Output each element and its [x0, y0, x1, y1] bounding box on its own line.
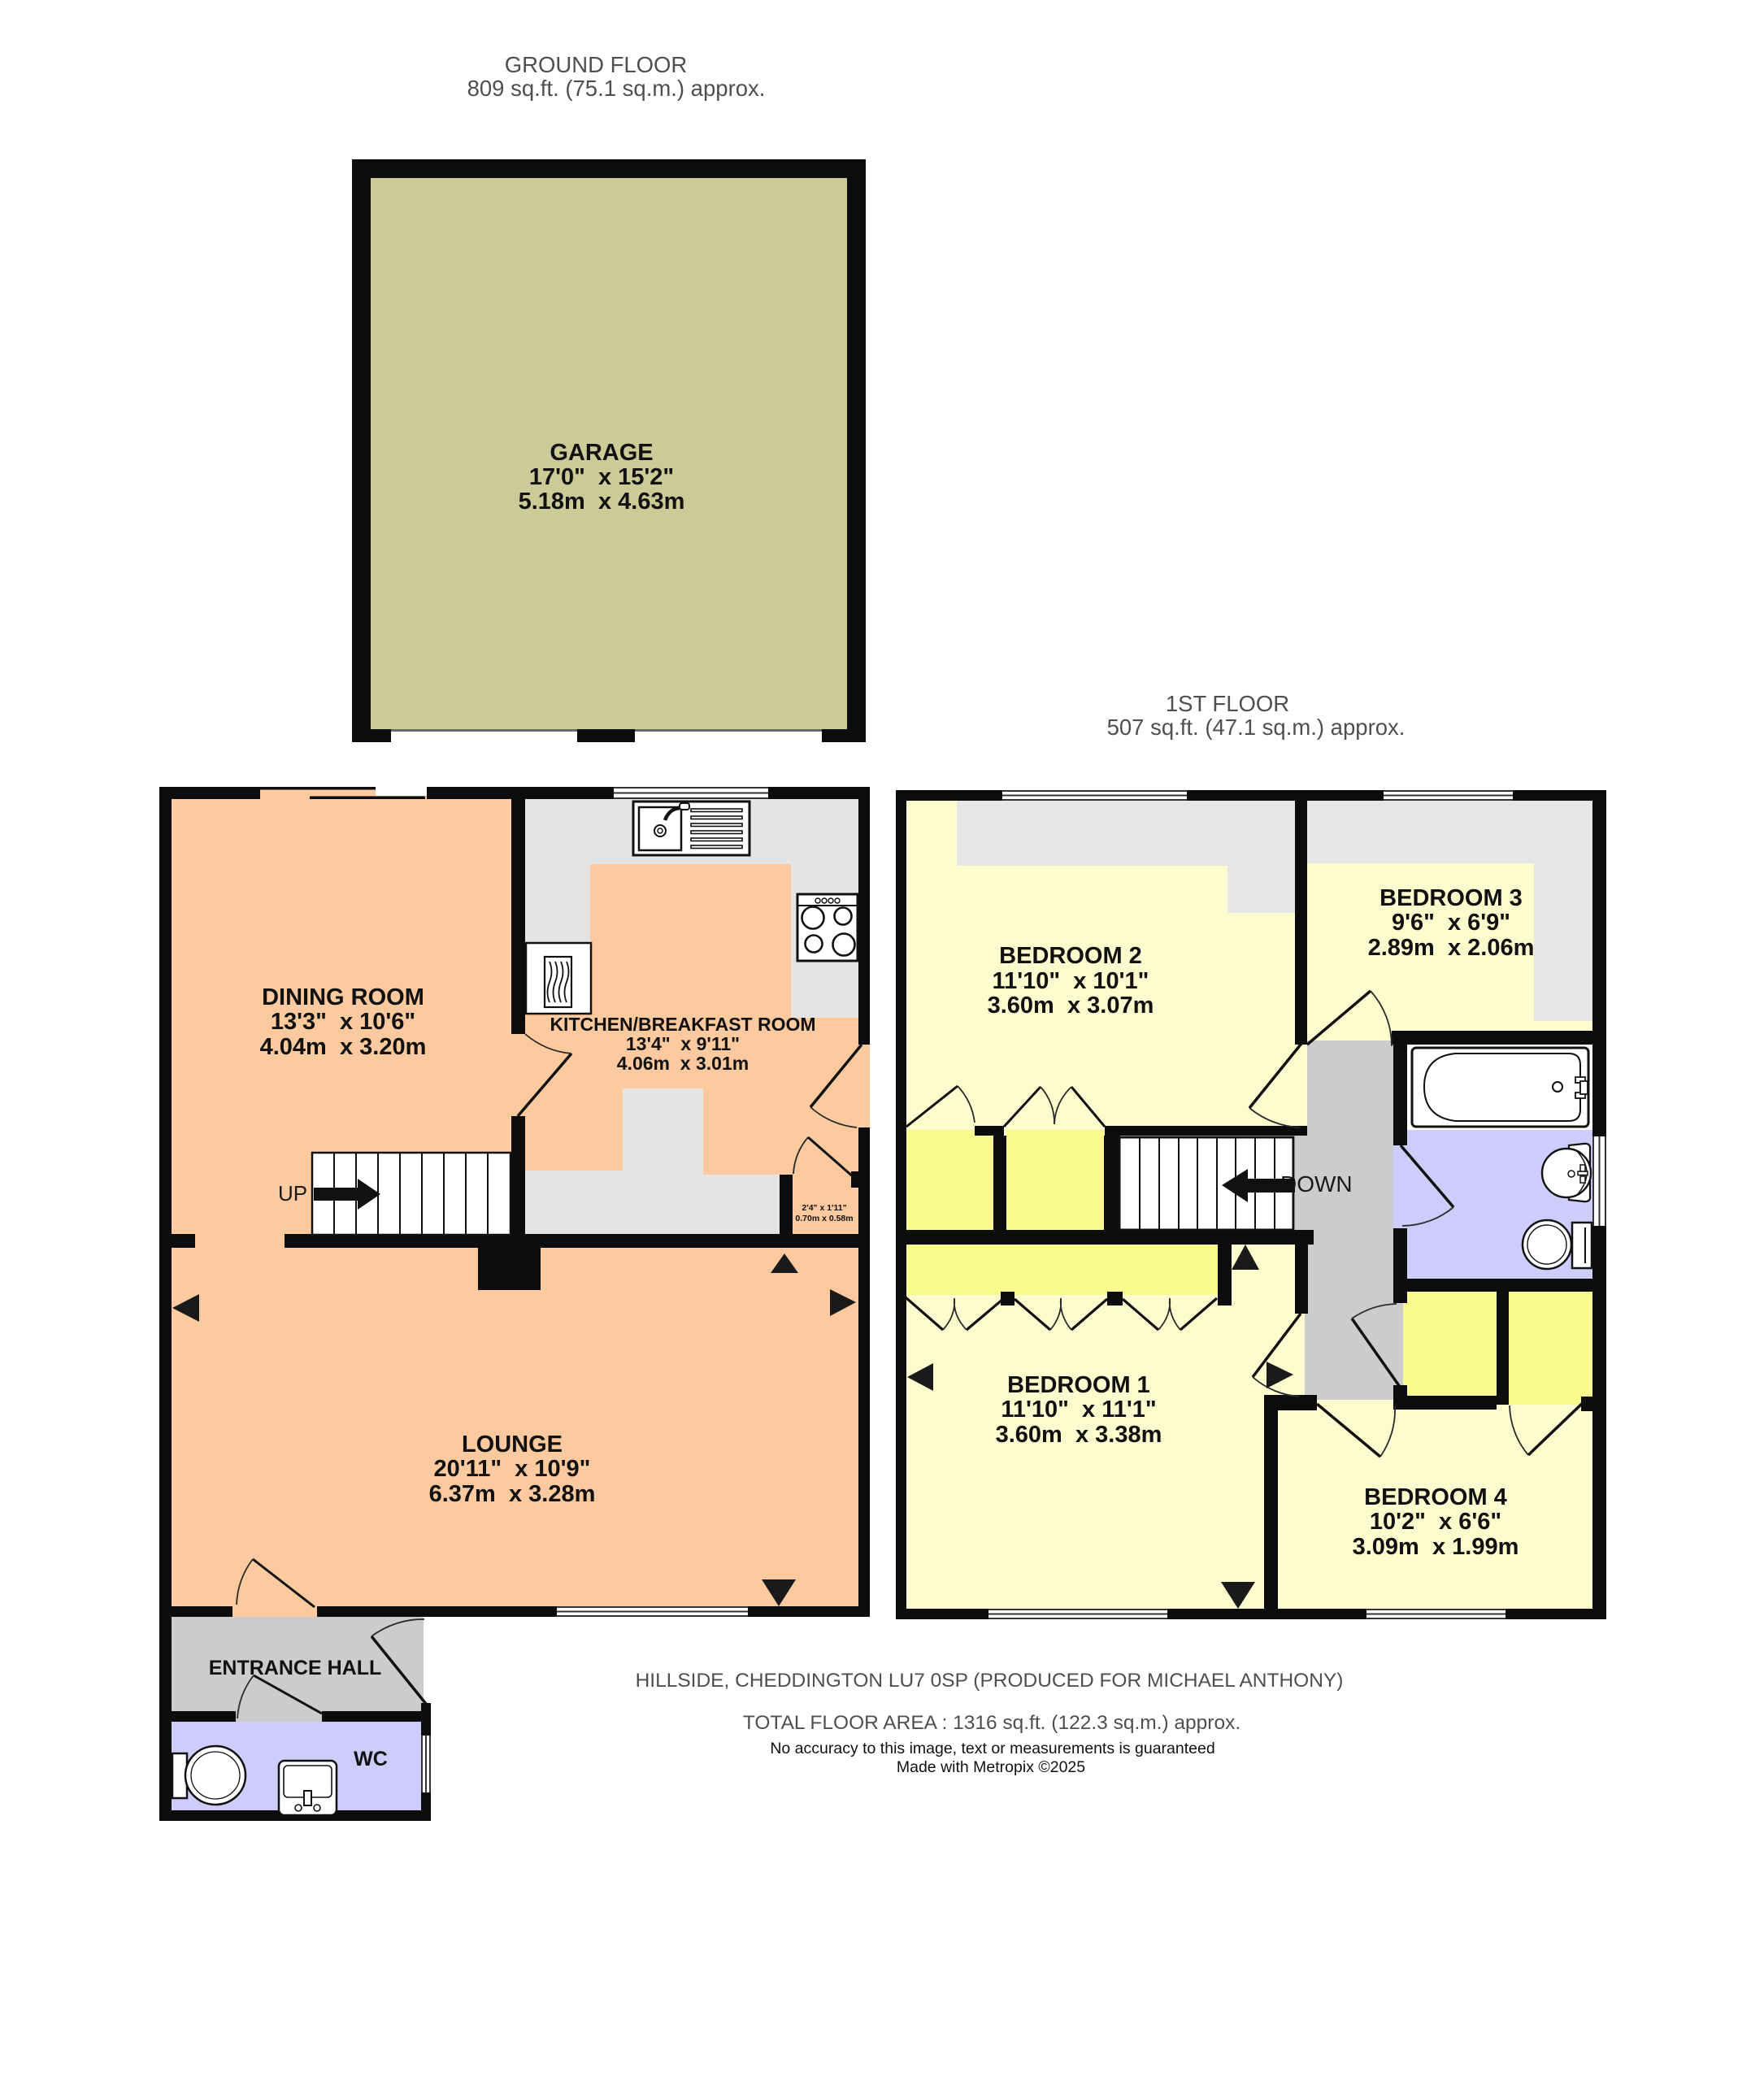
svg-text:LOUNGE: LOUNGE	[462, 1432, 563, 1458]
svg-text:BEDROOM 2: BEDROOM 2	[999, 943, 1142, 969]
svg-text:13'4" x 9'11": 13'4" x 9'11"	[626, 1033, 740, 1054]
svg-text:BEDROOM 1: BEDROOM 1	[1007, 1372, 1150, 1398]
svg-text:TOTAL FLOOR AREA : 1316 sq.ft.: TOTAL FLOOR AREA : 1316 sq.ft. (122.3 sq…	[743, 1712, 1240, 1734]
svg-text:WC: WC	[354, 1748, 388, 1770]
svg-text:DINING ROOM: DINING ROOM	[262, 984, 424, 1010]
svg-text:17'0" x 15'2": 17'0" x 15'2"	[529, 464, 674, 490]
svg-text:20'11" x 10'9": 20'11" x 10'9"	[434, 1456, 591, 1482]
svg-text:10'2" x 6'6": 10'2" x 6'6"	[1370, 1509, 1501, 1535]
svg-text:1ST FLOOR: 1ST FLOOR	[1166, 691, 1289, 716]
svg-text:13'3" x 10'6": 13'3" x 10'6"	[271, 1009, 415, 1035]
svg-text:GROUND FLOOR: GROUND FLOOR	[505, 52, 688, 77]
svg-text:507 sq.ft. (47.1 sq.m.) approx: 507 sq.ft. (47.1 sq.m.) approx.	[1107, 715, 1406, 740]
svg-text:GARAGE: GARAGE	[550, 440, 653, 466]
svg-text:11'10" x 11'1": 11'10" x 11'1"	[1001, 1397, 1156, 1423]
svg-text:ENTRANCE HALL: ENTRANCE HALL	[209, 1657, 382, 1679]
svg-text:BEDROOM 3: BEDROOM 3	[1379, 885, 1523, 911]
svg-text:6.37m x 3.28m: 6.37m x 3.28m	[429, 1481, 596, 1507]
svg-text:809 sq.ft. (75.1 sq.m.) approx: 809 sq.ft. (75.1 sq.m.) approx.	[467, 76, 766, 101]
svg-text:HILLSIDE, CHEDDINGTON LU7 0SP: HILLSIDE, CHEDDINGTON LU7 0SP (PRODUCED …	[636, 1670, 1344, 1692]
svg-text:No accuracy to this image, tex: No accuracy to this image, text or measu…	[770, 1740, 1214, 1757]
svg-text:Made with Metropix ©2025: Made with Metropix ©2025	[897, 1758, 1085, 1776]
svg-text:UP: UP	[278, 1181, 307, 1206]
svg-text:3.09m x 1.99m: 3.09m x 1.99m	[1353, 1534, 1519, 1560]
svg-text:4.06m x 3.01m: 4.06m x 3.01m	[617, 1053, 749, 1074]
svg-text:4.04m x 3.20m: 4.04m x 3.20m	[260, 1034, 427, 1060]
svg-text:3.60m x 3.38m: 3.60m x 3.38m	[996, 1422, 1162, 1448]
svg-text:0.70m x 0.58m: 0.70m x 0.58m	[795, 1214, 853, 1223]
svg-text:2.89m x 2.06m: 2.89m x 2.06m	[1368, 935, 1535, 961]
svg-text:11'10" x 10'1": 11'10" x 10'1"	[993, 968, 1149, 994]
svg-text:9'6" x 6'9": 9'6" x 6'9"	[1392, 910, 1510, 936]
svg-text:5.18m x 4.63m: 5.18m x 4.63m	[519, 489, 685, 515]
svg-text:3.60m x 3.07m: 3.60m x 3.07m	[988, 993, 1154, 1019]
svg-text:BEDROOM 4: BEDROOM 4	[1364, 1484, 1507, 1510]
svg-text:2'4" x 1'11": 2'4" x 1'11"	[802, 1203, 846, 1213]
svg-text:KITCHEN/BREAKFAST ROOM: KITCHEN/BREAKFAST ROOM	[550, 1014, 815, 1035]
